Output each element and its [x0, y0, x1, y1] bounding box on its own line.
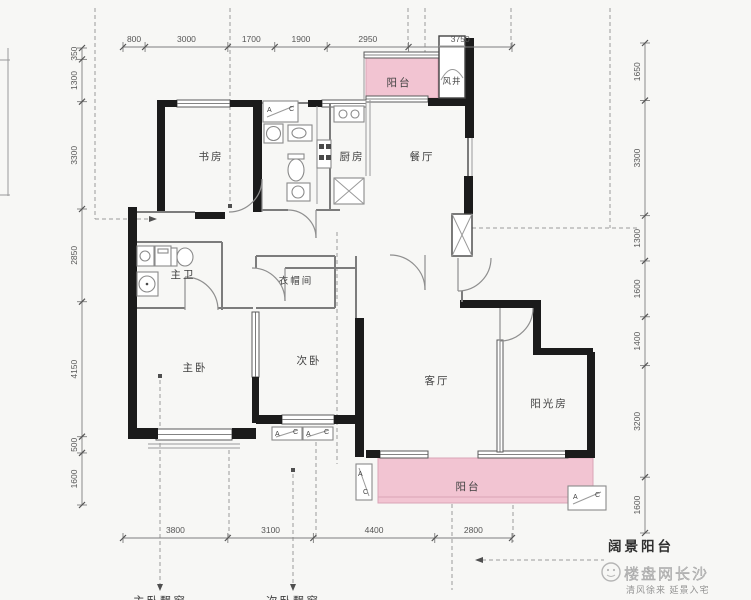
fix [288, 154, 304, 159]
window-bedroom-divider [252, 312, 259, 377]
wall [533, 300, 541, 352]
watermark: 楼盘网长沙 清风徐来 延景入宅 [602, 563, 710, 595]
aclabel: A [275, 431, 280, 438]
wall [232, 428, 256, 439]
ac-unit: AC [303, 427, 333, 440]
window-balcony-top [364, 52, 442, 58]
floorplan-page: AC AC AC AC AC 书房 厨房 餐厅 阳台 风井 主卫 衣帽间 主卧 … [0, 0, 751, 600]
washer-icon [155, 246, 171, 266]
watermark-slogan: 清风徐来 延景入宅 [626, 584, 710, 595]
dimension-label: 2950 [358, 34, 377, 44]
window-second-bedroom [282, 415, 334, 424]
circle-shape [613, 569, 615, 571]
label-sunroom: 阳光房 [530, 397, 568, 410]
fix [140, 251, 150, 261]
label-balcony-bottom: 阳台 [456, 480, 481, 493]
fix [171, 248, 177, 266]
label-kitchen: 厨房 [340, 150, 365, 163]
wall [128, 207, 137, 438]
dimension-label: 3750 [451, 34, 470, 44]
washer-icon [264, 124, 283, 143]
window-study-top [177, 100, 230, 107]
fix [292, 186, 304, 198]
door [500, 308, 533, 341]
ac-unit: AC [272, 427, 302, 440]
toilet-icon [171, 248, 193, 266]
window-living-balcony-left [380, 451, 428, 458]
toilet-icon [288, 154, 304, 181]
door [185, 277, 218, 310]
aclabel: C [363, 489, 368, 496]
kitchen-sink-icon [334, 106, 364, 122]
circle-shape [607, 569, 609, 571]
label-second-bedroom: 次卧 [297, 354, 322, 367]
aclabel: A [267, 107, 272, 114]
shower-icon [137, 272, 158, 296]
duct-x-box [452, 214, 472, 256]
label-master-bedroom: 主卧 [183, 361, 208, 374]
dimension-label: 800 [127, 34, 141, 44]
dimension-label: 3800 [166, 525, 185, 535]
fix [288, 159, 304, 181]
fix [158, 249, 168, 253]
aclabel: A [358, 471, 363, 478]
dimension-label: 500 [69, 437, 79, 451]
ac-units: AC AC AC AC AC [263, 101, 606, 510]
shower-icon [287, 183, 310, 201]
sink-icon [288, 125, 312, 141]
fix [351, 110, 359, 118]
wall [428, 98, 465, 106]
dimension-left: 35013003300285041505001600 [69, 45, 87, 508]
wall [355, 318, 364, 457]
arrow [157, 584, 163, 591]
arrow [475, 557, 483, 563]
door-living [500, 308, 533, 341]
dimension-label: 1700 [242, 34, 261, 44]
wall [157, 100, 165, 212]
wall [334, 415, 362, 424]
wall [587, 352, 595, 457]
marker [228, 204, 232, 208]
dimension-label: 4150 [69, 359, 79, 378]
wall [533, 348, 593, 355]
dimension-label: 1400 [632, 331, 642, 350]
arrow [149, 216, 157, 222]
shaftline [439, 36, 465, 98]
dimension-label: 3000 [177, 34, 196, 44]
wall [460, 300, 540, 308]
door-entry [458, 258, 491, 291]
label-air-shaft: 风井 [442, 76, 461, 86]
watermark-brand: 楼盘网长沙 [624, 565, 709, 583]
dimension-label: 1600 [69, 469, 79, 488]
label-balcony-top: 阳台 [387, 76, 412, 89]
ac-unit: AC [568, 486, 606, 510]
dimension-label: 4400 [365, 525, 384, 535]
dimension-label: 1650 [632, 62, 642, 81]
fridge-icon [334, 178, 364, 204]
fix [267, 127, 281, 141]
wall [464, 176, 473, 214]
dimension-label: 3200 [632, 412, 642, 431]
door [458, 258, 491, 291]
aclabel: C [324, 429, 329, 436]
door-bath [288, 210, 316, 238]
wall [195, 212, 225, 219]
dimension-label: 3300 [69, 146, 79, 165]
label-living: 客厅 [425, 374, 450, 387]
marker [291, 468, 295, 472]
dimension-label: 1300 [632, 229, 642, 248]
balcony-bottom-area [378, 458, 593, 503]
fixd [319, 144, 324, 149]
dimension-label: 1600 [632, 495, 642, 514]
wall [308, 100, 322, 107]
window-living-balcony-right [478, 451, 568, 458]
window-balcony-dining [366, 96, 428, 102]
aclabel: C [595, 492, 600, 499]
floorplan-drawing: AC AC AC AC AC 书房 厨房 餐厅 阳台 风井 主卫 衣帽间 主卧 … [0, 0, 751, 600]
dimension-bottom: 3800310044002800 [120, 525, 515, 543]
marker [158, 374, 162, 378]
label-study: 书房 [199, 150, 224, 163]
dimension-right: 1650330013001600140032001600 [632, 40, 650, 536]
door-master-bedroom [185, 277, 218, 310]
arrow [290, 584, 296, 591]
door [390, 255, 425, 290]
fixd [319, 155, 324, 160]
wall [565, 450, 595, 458]
door-hall [390, 255, 425, 290]
fix [177, 248, 193, 266]
window-master-bay [148, 429, 240, 448]
ac-unit: AC [356, 464, 372, 500]
wall [256, 415, 282, 424]
aclabel: C [289, 106, 294, 113]
wall [366, 450, 380, 458]
dimension-label: 350 [69, 46, 79, 60]
path-shape [607, 575, 615, 577]
watermark-logo-icon [602, 563, 620, 581]
fixd [326, 144, 331, 149]
construction-lines [0, 8, 640, 591]
sink-icon [137, 246, 154, 266]
fix [292, 128, 306, 138]
aclabel: A [573, 494, 578, 501]
fix [339, 110, 347, 118]
air-shaft-box [439, 36, 465, 98]
stove-icon [317, 140, 331, 168]
fixd [146, 283, 149, 286]
aclabel: C [293, 429, 298, 436]
fixd [326, 155, 331, 160]
cut-label-master-bay: 主卧飘窗 [125, 593, 195, 600]
label-dining: 餐厅 [410, 150, 435, 163]
aclabel: A [306, 431, 311, 438]
balconies [366, 58, 593, 503]
dimension-label: 2850 [69, 246, 79, 265]
wall [128, 428, 158, 439]
cut-label-second-bay: 次卧飘窗 [258, 593, 328, 600]
dimension-label: 1900 [291, 34, 310, 44]
wide-balcony-callout: 阔景阳台 [608, 538, 674, 554]
wall [465, 38, 474, 138]
window-sunroom-divider [497, 340, 503, 452]
dimension-label: 3100 [261, 525, 280, 535]
dimension-label: 1300 [69, 71, 79, 90]
dimension-label: 2800 [464, 525, 483, 535]
dimension-label: 3300 [632, 148, 642, 167]
dimension-label: 1600 [632, 279, 642, 298]
label-master-bath: 主卫 [171, 269, 196, 281]
ac-unit: AC [263, 101, 298, 122]
door [288, 210, 316, 238]
label-cloakroom: 衣帽间 [279, 275, 314, 287]
